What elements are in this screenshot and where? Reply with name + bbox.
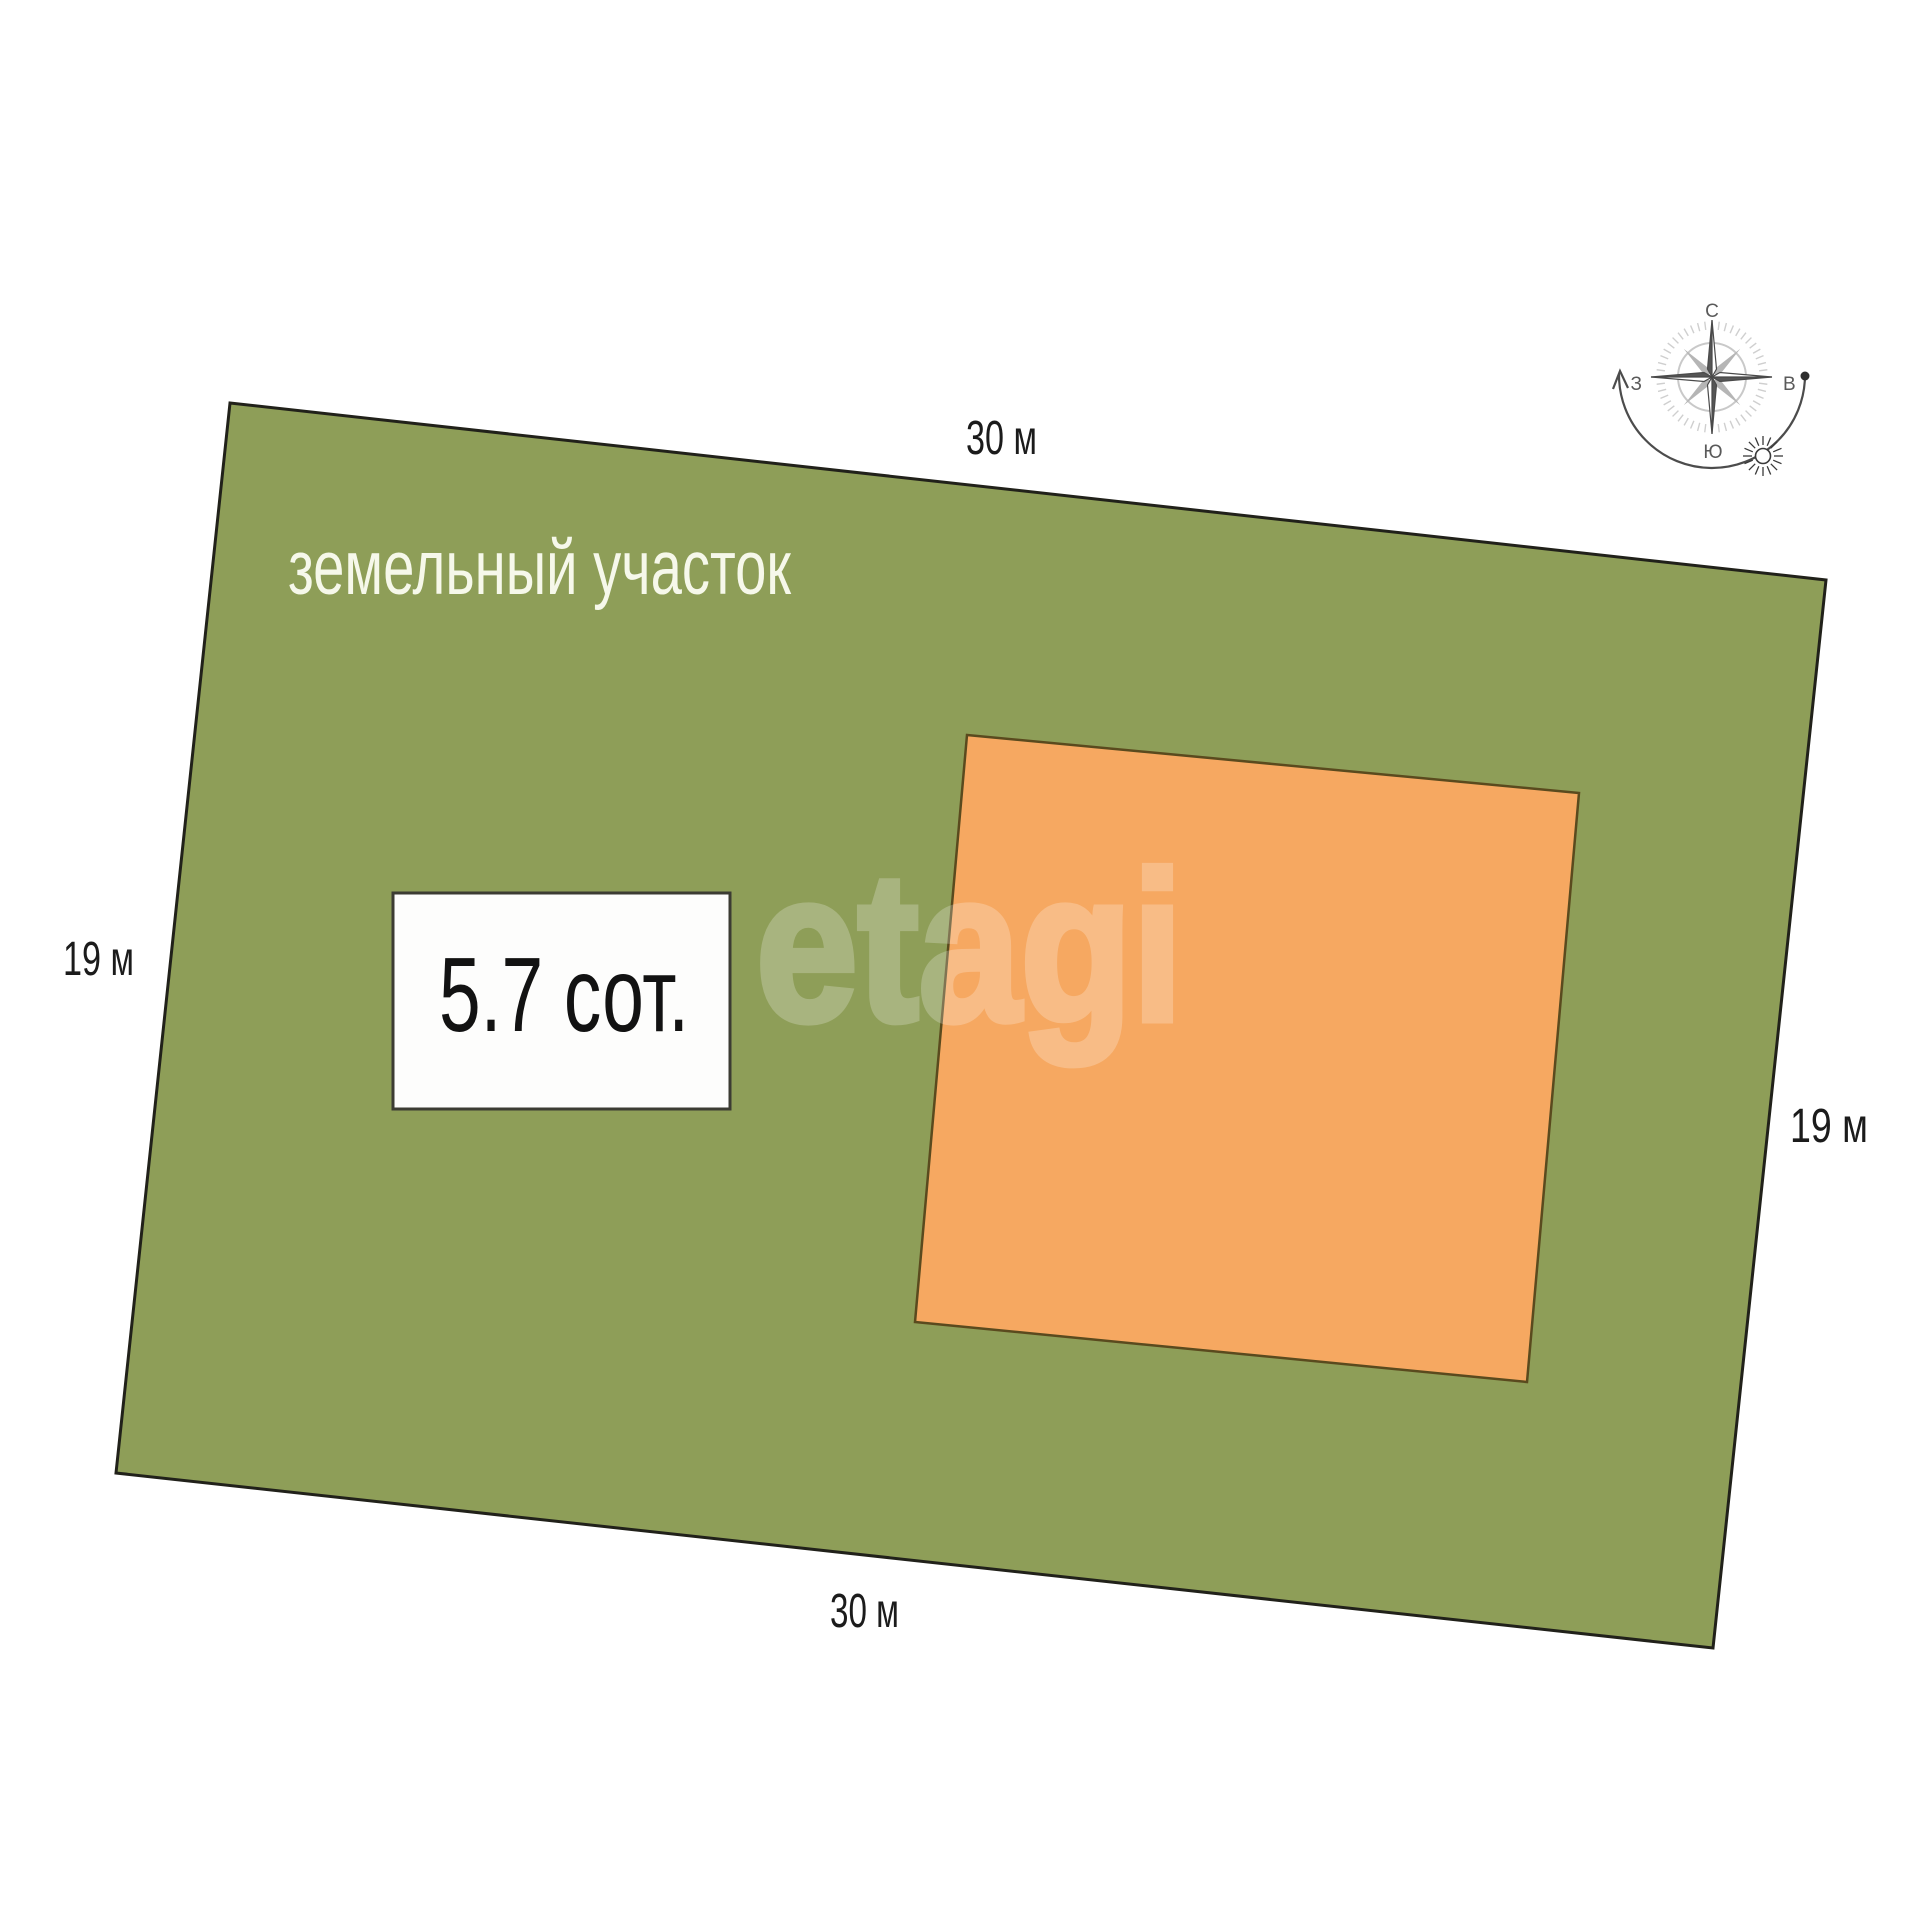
svg-text:В: В — [1783, 374, 1796, 395]
svg-text:земельный участок: земельный участок — [288, 525, 792, 611]
svg-text:etagi: etagi — [756, 828, 1183, 1065]
svg-text:5.7 сот.: 5.7 сот. — [439, 936, 689, 1054]
svg-text:30 м: 30 м — [966, 412, 1037, 465]
svg-text:30 м: 30 м — [830, 1585, 899, 1638]
svg-text:С: С — [1705, 301, 1719, 322]
svg-text:З: З — [1631, 374, 1642, 395]
svg-text:19 м: 19 м — [1790, 1100, 1868, 1153]
svg-text:19 м: 19 м — [63, 933, 134, 986]
svg-text:Ю: Ю — [1703, 442, 1722, 463]
